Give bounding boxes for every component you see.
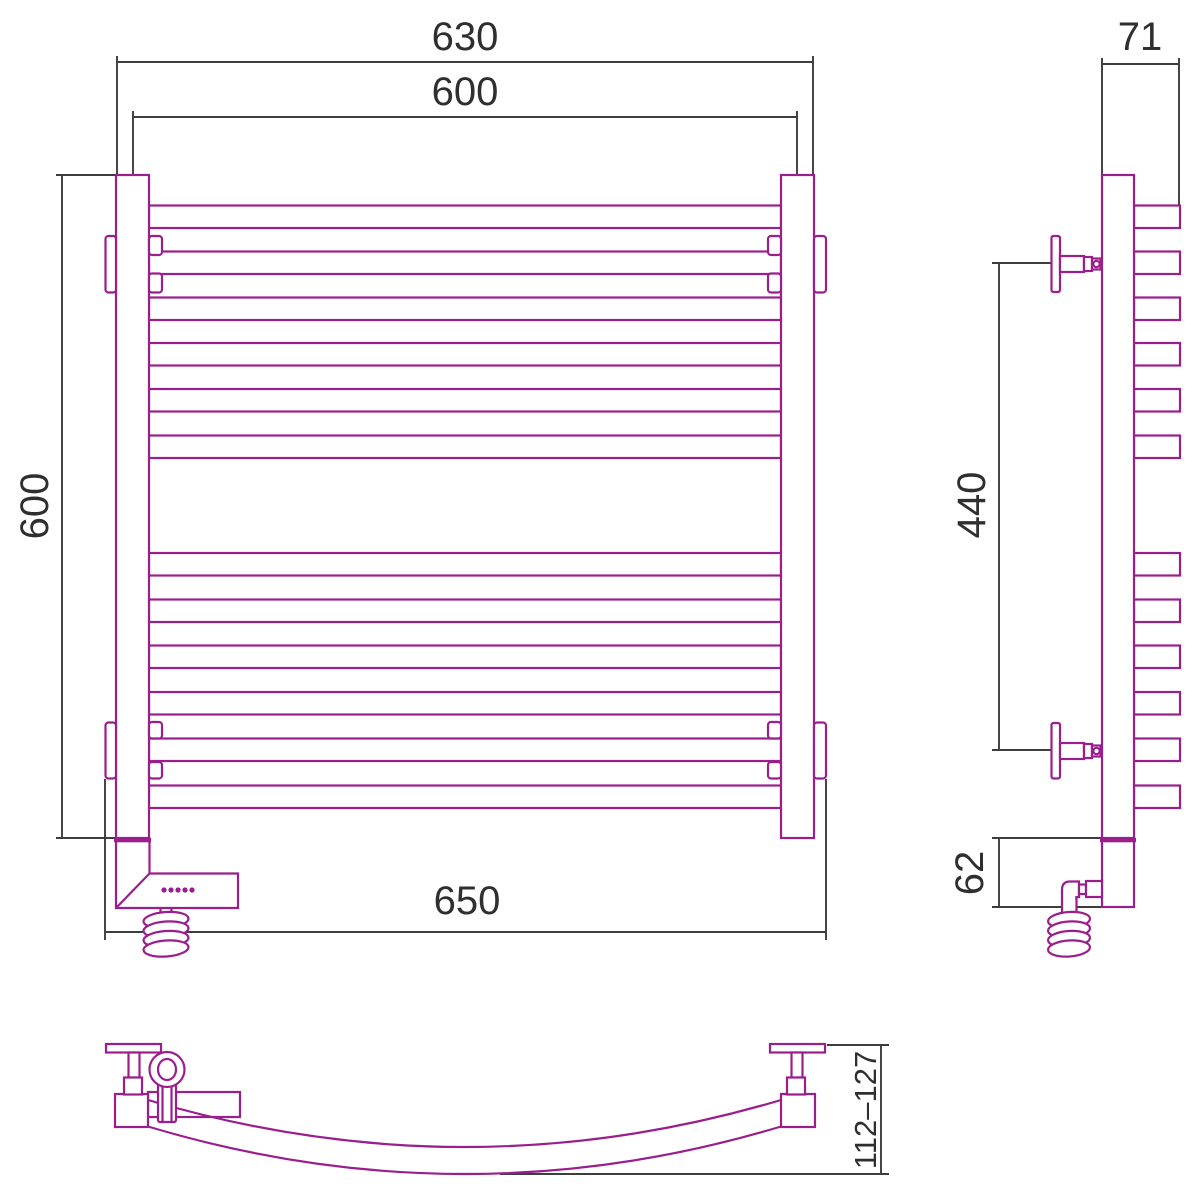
dim-front-width-centers: 600 [133,70,797,175]
dim-label-600-left: 600 [13,473,57,540]
dimension-layer: 630 600 600 650 71 [13,15,1179,1174]
technical-drawing: 630 600 600 650 71 [0,0,1200,1193]
rung [149,600,781,623]
dim-label-71: 71 [1118,15,1163,59]
dim-label-600-top: 600 [432,70,499,114]
rung-stub [1134,692,1180,715]
dim-label-112-127: 112–127 [848,1051,883,1169]
rung-stub [1134,252,1180,275]
side-view [1047,175,1180,958]
plan-bracket-right [770,1044,825,1095]
front-heating-unit [114,840,238,908]
side-cable-elbow [1062,881,1102,913]
rung-stub [1134,786,1180,809]
front-power-cable-coil [143,908,189,958]
rung [149,252,781,275]
rung [149,206,781,229]
dim-front-height: 600 [13,175,116,838]
rung-stub [1134,600,1180,623]
plan-curved-rung [148,1100,781,1174]
side-rungs [1134,206,1180,809]
indicator-dot [175,887,180,892]
plan-right-post [781,1094,815,1127]
rung [149,786,781,809]
rung [149,553,781,576]
rung [149,343,781,366]
rung-stub [1134,436,1180,459]
dim-label-630: 630 [432,15,499,59]
indicator-dot [189,887,194,892]
side-power-cable-coil [1047,911,1090,958]
rung [149,739,781,762]
plan-left-post [115,1094,148,1127]
dim-label-440: 440 [950,472,994,539]
rung [149,298,781,321]
dim-side-bracket-spacing: 440 [950,263,1052,750]
indicator-dot [168,887,173,892]
rung [149,692,781,715]
dim-label-650: 650 [434,879,501,923]
front-left-post [116,175,149,838]
rung-stub [1134,298,1180,321]
dim-label-62: 62 [948,851,992,896]
rung-stub [1134,206,1180,229]
rung-stub [1134,553,1180,576]
plan-view [106,1044,825,1174]
front-rungs [149,206,781,809]
front-right-post [781,175,814,838]
rung [149,436,781,459]
side-bracket-bottom [1052,723,1101,779]
rung-stub [1134,389,1180,412]
rung-stub [1134,739,1180,762]
dim-plan-wall-offset: 112–127 [500,1045,889,1174]
rung [149,389,781,412]
side-bracket-top [1052,236,1101,292]
indicator-dot [161,887,166,892]
side-heating-unit [1102,841,1134,907]
side-post [1102,175,1134,838]
rung-stub [1134,646,1180,669]
indicator-dot [182,887,187,892]
rung-stub [1134,343,1180,366]
front-view [106,175,827,958]
rung [149,646,781,669]
